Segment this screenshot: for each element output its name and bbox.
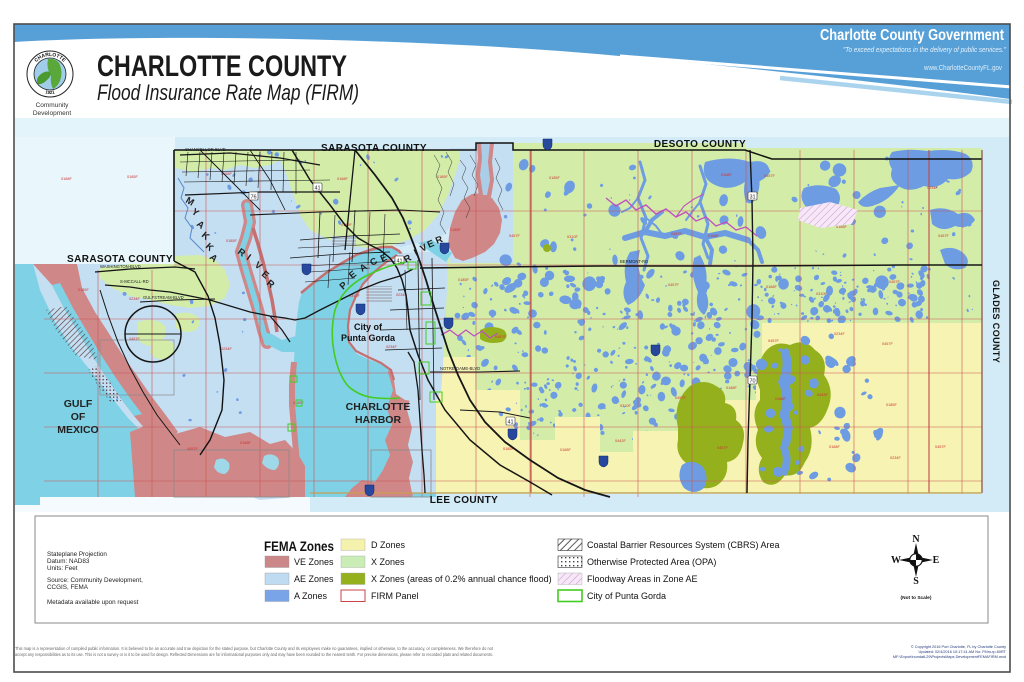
svg-text:Coastal Barrier Resources Syst: Coastal Barrier Resources System (CBRS) … — [587, 540, 780, 550]
svg-text:0457F: 0457F — [768, 339, 779, 343]
svg-text:(Not to Scale): (Not to Scale) — [901, 595, 932, 601]
svg-text:AE Zones: AE Zones — [294, 574, 334, 584]
svg-text:0185F: 0185F — [78, 288, 89, 292]
svg-text:0457F: 0457F — [935, 445, 946, 449]
svg-text:0185F: 0185F — [437, 175, 448, 179]
svg-text:Units: Feet: Units: Feet — [47, 565, 78, 572]
svg-text:© Copyright 2016 Port Charlott: © Copyright 2016 Port Charlotte, FL by C… — [911, 645, 1006, 649]
svg-text:X Zones: X Zones — [371, 557, 405, 567]
svg-text:0457F: 0457F — [764, 174, 775, 178]
svg-text:GULFSTREAM-BLVD: GULFSTREAM-BLVD — [143, 295, 184, 300]
svg-text:0457F: 0457F — [882, 342, 893, 346]
svg-text:0234F: 0234F — [927, 186, 938, 190]
svg-text:0234F: 0234F — [386, 345, 397, 349]
svg-text:0310F: 0310F — [816, 292, 827, 296]
svg-text:OF: OF — [71, 411, 86, 423]
svg-text:0457F: 0457F — [889, 280, 900, 284]
svg-text:Charlotte County Government: Charlotte County Government — [820, 27, 1004, 44]
svg-text:GLADES COUNTY: GLADES COUNTY — [991, 280, 1001, 363]
svg-text:0168F: 0168F — [61, 177, 72, 181]
svg-text:DESOTO COUNTY: DESOTO COUNTY — [654, 139, 746, 150]
svg-text:SARASOTA COUNTY: SARASOTA COUNTY — [321, 143, 427, 154]
svg-text:MEXICO: MEXICO — [57, 424, 98, 436]
svg-text:0457F: 0457F — [187, 447, 198, 451]
svg-text:0457F: 0457F — [129, 337, 140, 341]
svg-text:S-MCCALL-RD: S-MCCALL-RD — [120, 279, 149, 284]
svg-text:Updated: 02/4/2016 10:17:41 AM: Updated: 02/4/2016 10:17:41 AM No: FMm-r… — [918, 650, 1006, 654]
svg-text:0185F: 0185F — [886, 403, 897, 407]
svg-text:BERMONT-RD: BERMONT-RD — [620, 259, 648, 264]
svg-text:Metadata available upon reques: Metadata available upon request — [47, 599, 139, 606]
svg-text:Punta Gorda: Punta Gorda — [341, 333, 396, 343]
svg-text:D Zones: D Zones — [371, 540, 406, 550]
svg-text:City of: City of — [354, 322, 383, 332]
svg-text:LEE COUNTY: LEE COUNTY — [430, 495, 498, 506]
svg-text:A Zones: A Zones — [294, 591, 328, 601]
svg-text:0457F: 0457F — [509, 234, 520, 238]
svg-text:CCGIS, FEMA: CCGIS, FEMA — [47, 584, 89, 591]
svg-text:0457F: 0457F — [671, 232, 682, 236]
svg-text:City of Punta Gorda: City of Punta Gorda — [587, 591, 666, 601]
svg-text:0185F: 0185F — [226, 239, 237, 243]
svg-text:0185F: 0185F — [549, 176, 560, 180]
svg-text:0185F: 0185F — [458, 278, 469, 282]
svg-text:0457F: 0457F — [938, 234, 949, 238]
svg-text:NOTRE-DAME-BLVD: NOTRE-DAME-BLVD — [440, 366, 480, 371]
svg-text:This map is a representation o: This map is a representation of compiled… — [15, 646, 494, 651]
svg-text:41: 41 — [314, 186, 320, 192]
svg-text:accept any responsibilities as: accept any responsibilities as to its us… — [15, 652, 493, 657]
svg-text:WASHINGTON-BLVD: WASHINGTON-BLVD — [100, 264, 141, 269]
svg-text:0457F: 0457F — [717, 446, 728, 450]
svg-text:Otherwise Protected Area (OPA): Otherwise Protected Area (OPA) — [587, 557, 716, 567]
svg-text:0457F: 0457F — [668, 283, 679, 287]
svg-text:0168F: 0168F — [560, 448, 571, 452]
svg-text:CHARLOTTE COUNTY: CHARLOTTE COUNTY — [97, 50, 347, 83]
svg-text:0234F: 0234F — [221, 347, 232, 351]
svg-text:0185F: 0185F — [450, 228, 461, 232]
svg-text:www.CharlotteCountyFL.gov: www.CharlotteCountyFL.gov — [923, 63, 1002, 72]
svg-text:FIRM Panel: FIRM Panel — [371, 591, 419, 601]
svg-text:"To exceed expectations in the: "To exceed expectations in the delivery … — [843, 45, 1006, 54]
svg-text:0234F: 0234F — [834, 332, 845, 336]
svg-text:31: 31 — [749, 195, 755, 201]
svg-text:0168F: 0168F — [726, 386, 737, 390]
svg-text:Source: Community Development,: Source: Community Development, — [47, 577, 143, 584]
svg-text:0168F: 0168F — [775, 397, 786, 401]
svg-text:0168F: 0168F — [766, 285, 777, 289]
svg-text:0168F: 0168F — [829, 445, 840, 449]
svg-text:GULF: GULF — [64, 398, 93, 410]
svg-text:76: 76 — [250, 195, 256, 201]
svg-text:0185F: 0185F — [293, 401, 304, 405]
svg-text:Floodway Areas in Zone AE: Floodway Areas in Zone AE — [587, 574, 698, 584]
svg-text:FEMA Zones: FEMA Zones — [264, 539, 334, 554]
svg-text:Development: Development — [33, 110, 71, 117]
svg-text:0310F: 0310F — [567, 235, 578, 239]
svg-text:N: N — [912, 534, 920, 545]
svg-text:0234F: 0234F — [890, 456, 901, 460]
svg-text:0168F: 0168F — [337, 177, 348, 181]
svg-text:0457F: 0457F — [675, 396, 686, 400]
svg-text:VE Zones: VE Zones — [294, 557, 334, 567]
svg-text:0168F: 0168F — [708, 234, 719, 238]
svg-text:HARBOR: HARBOR — [355, 414, 401, 426]
svg-text:70: 70 — [749, 379, 755, 385]
svg-text:0168F: 0168F — [240, 441, 251, 445]
svg-text:0457F: 0457F — [495, 335, 506, 339]
svg-text:S: S — [913, 576, 919, 587]
svg-text:0442F: 0442F — [615, 439, 626, 443]
svg-text:X Zones (areas of 0.2% annual: X Zones (areas of 0.2% annual chance flo… — [371, 574, 552, 584]
svg-text:1921: 1921 — [45, 89, 56, 95]
svg-text:0168F: 0168F — [721, 173, 732, 177]
svg-text:Community: Community — [36, 102, 70, 109]
svg-text:Datum: NAD83: Datum: NAD83 — [47, 558, 90, 565]
svg-text:E: E — [933, 555, 940, 566]
svg-text:MF:\ExportInundatL29\ProjectsM: MF:\ExportInundatL29\ProjectsMaps Develo… — [893, 655, 1006, 659]
svg-text:41: 41 — [507, 420, 513, 426]
svg-text:W: W — [891, 555, 901, 566]
svg-text:Flood Insurance Rate Map (FIRM: Flood Insurance Rate Map (FIRM) — [97, 80, 359, 105]
svg-text:Stateplane Projection: Stateplane Projection — [47, 551, 107, 558]
svg-text:0442F: 0442F — [817, 393, 828, 397]
svg-text:CHARLOTTE: CHARLOTTE — [346, 401, 411, 413]
svg-text:0234F: 0234F — [129, 297, 140, 301]
svg-text:0310F: 0310F — [620, 404, 631, 408]
svg-text:0185F: 0185F — [127, 175, 138, 179]
svg-text:CHANCELLOR-BLVD: CHANCELLOR-BLVD — [185, 147, 226, 152]
